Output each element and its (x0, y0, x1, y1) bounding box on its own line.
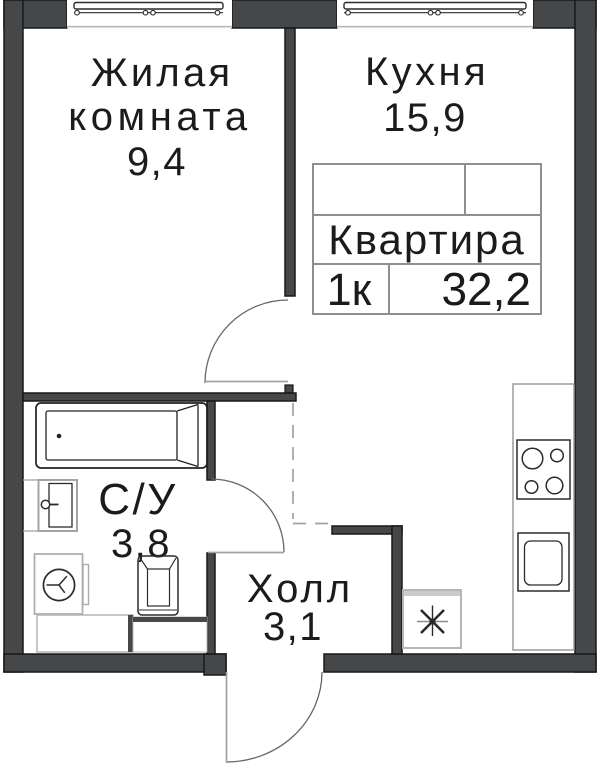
svg-text:Квартира: Квартира (328, 216, 526, 263)
svg-text:комната: комната (68, 95, 251, 139)
svg-text:15,9: 15,9 (383, 96, 467, 140)
svg-text:Кухня: Кухня (365, 50, 489, 94)
svg-text:С/У: С/У (98, 475, 177, 524)
svg-text:1к: 1к (327, 264, 372, 315)
svg-text:9,4: 9,4 (127, 140, 187, 184)
svg-text:3,1: 3,1 (263, 605, 323, 649)
svg-text:32,2: 32,2 (441, 263, 531, 315)
svg-text:Жилая: Жилая (91, 51, 234, 95)
